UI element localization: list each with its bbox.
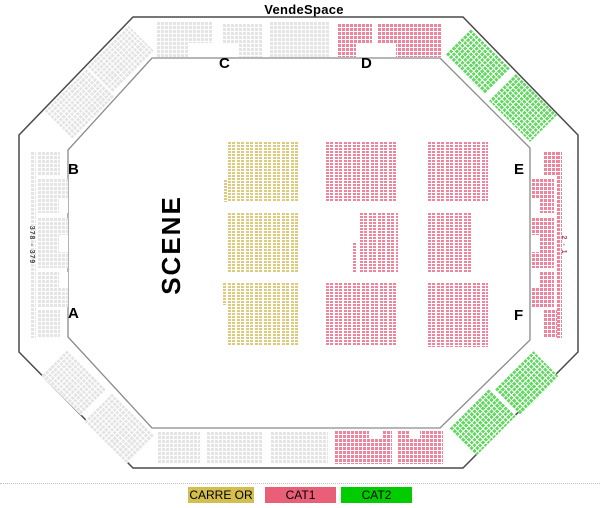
- section-label-d: D: [361, 56, 372, 71]
- notch: [378, 44, 396, 57]
- floor-block-cat1-right-top[interactable]: [428, 142, 488, 202]
- floor-strip-cat1-left-mid[interactable]: [353, 243, 357, 273]
- row-range-label-right: 2 - 1: [558, 220, 568, 270]
- section-label-e: E: [514, 162, 524, 177]
- venue-title: VendeSpace: [204, 2, 404, 17]
- floor-block-cat1-left-bottom[interactable]: [326, 283, 398, 345]
- seat-block-bottom-gray-1[interactable]: [158, 432, 200, 464]
- seat-block-bottom-pink-2[interactable]: [398, 431, 443, 464]
- section-label-a: A: [68, 306, 79, 321]
- floor-block-cat1-right-bottom[interactable]: [428, 283, 488, 347]
- floor-block-carre-or-mid[interactable]: [228, 213, 300, 273]
- section-label-b: B: [68, 162, 79, 177]
- venue-map: VendeSpace SCENE C D B A E F 378 - 379 2…: [0, 0, 600, 508]
- notch: [59, 198, 68, 213]
- floor-block-cat1-right-mid[interactable]: [428, 213, 473, 273]
- seat-block-left-2[interactable]: [38, 179, 68, 213]
- seat-block-left-1[interactable]: [38, 152, 60, 175]
- notch: [59, 235, 68, 252]
- notch: [532, 235, 539, 252]
- seat-block-c3[interactable]: [270, 22, 330, 57]
- notch: [59, 272, 68, 287]
- notch: [369, 431, 382, 438]
- row-range-label-left: 378 - 379: [26, 210, 36, 280]
- seat-block-right-2[interactable]: [532, 179, 554, 213]
- seat-block-left-3[interactable]: [38, 218, 68, 268]
- legend-chip-carre-or: CARRE OR: [188, 487, 254, 503]
- floor-block-carre-or-top[interactable]: [228, 142, 300, 202]
- seat-block-bottom-gray-3[interactable]: [271, 432, 328, 464]
- floor-strip-carre-or-bottom[interactable]: [223, 283, 227, 305]
- seat-block-bottom-pink-1[interactable]: [335, 431, 392, 464]
- stage-label: SCENE: [157, 185, 185, 305]
- legend-divider: [0, 483, 600, 484]
- seat-block-c1[interactable]: [157, 22, 212, 57]
- floor-block-cat1-left-top[interactable]: [326, 142, 398, 202]
- seat-block-right-5[interactable]: [544, 310, 557, 337]
- floor-block-cat1-left-mid[interactable]: [360, 213, 398, 273]
- notch: [188, 43, 212, 57]
- seat-block-right-1[interactable]: [544, 152, 557, 175]
- notch: [532, 198, 539, 213]
- section-label-f: F: [514, 308, 523, 323]
- legend-chip-cat1: CAT1: [265, 487, 336, 503]
- floor-block-carre-or-bottom[interactable]: [228, 283, 300, 345]
- seat-block-right-4[interactable]: [532, 272, 554, 307]
- seat-block-left-5[interactable]: [38, 310, 60, 337]
- notch: [410, 431, 420, 438]
- seat-block-c2[interactable]: [223, 24, 263, 57]
- floor-strip-carre-or-top[interactable]: [224, 180, 228, 202]
- seat-block-d1[interactable]: [338, 24, 372, 57]
- seat-block-left-4[interactable]: [38, 272, 68, 307]
- seat-block-d2[interactable]: [378, 24, 441, 57]
- seat-block-right-3[interactable]: [532, 218, 554, 268]
- notch: [532, 272, 539, 287]
- legend-chip-cat2: CAT2: [341, 487, 412, 503]
- seat-block-bottom-gray-2[interactable]: [207, 432, 263, 464]
- section-label-c: C: [219, 56, 230, 71]
